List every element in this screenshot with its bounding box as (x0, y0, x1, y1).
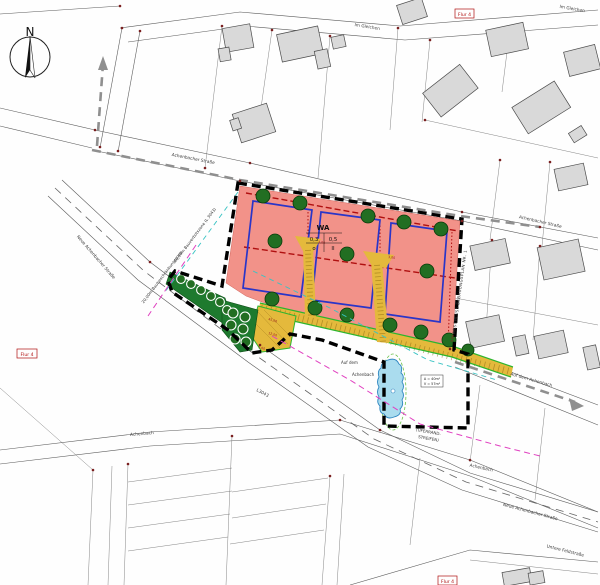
street-label-auf-dem-line2: Achenbach (352, 372, 375, 377)
street-label-untere-feldstrasse: Untere Feldstraße (546, 543, 585, 558)
street-label-neue-achenbacher-1: Neue Achenbacher Straße (75, 234, 117, 281)
gfz-value: 0,5 (329, 237, 338, 243)
street-label-l3043: L3043 (255, 387, 270, 399)
vollgeschosse-value: II (331, 246, 335, 252)
flur-label-bottom: Flur 4 (441, 579, 454, 585)
arrow-up-icon (98, 56, 108, 70)
retention-basin (378, 354, 407, 430)
zoning-plan-map: N WA 0,3 0,5 o II Im Gleichen Im Gleiche… (0, 0, 600, 585)
site-plan-svg: N WA 0,3 0,5 o II Im Gleichen Im Gleiche… (0, 0, 600, 585)
street-label-im-gleichen-1: Im Gleichen (354, 22, 381, 32)
bauweise-value: o (312, 246, 315, 252)
north-arrow-icon: N (10, 25, 50, 78)
basin-volume-value: V = 57m³ (424, 382, 441, 386)
street-label-achenbach-1: Achenbach (130, 430, 154, 438)
flur-label-left: Flur 4 (20, 352, 33, 358)
street-label-neue-achenbacher-2: Neue Achenbacher Straße (502, 502, 558, 522)
dim-4: 5,00 (258, 345, 266, 351)
basin-area-value: A = 40m² (424, 377, 441, 381)
street-label-auf-dem-line1: Auf dem (341, 360, 358, 365)
zoning-district-label: WA (317, 224, 330, 232)
compass-north-label: N (26, 25, 35, 39)
flur-label-top: Flur 4 (458, 12, 471, 18)
street-label-achenbach-2: Achenbach (469, 462, 494, 473)
grz-value: 0,3 (310, 237, 319, 243)
arrow-down-right-icon (569, 398, 584, 411)
pond (378, 359, 404, 418)
